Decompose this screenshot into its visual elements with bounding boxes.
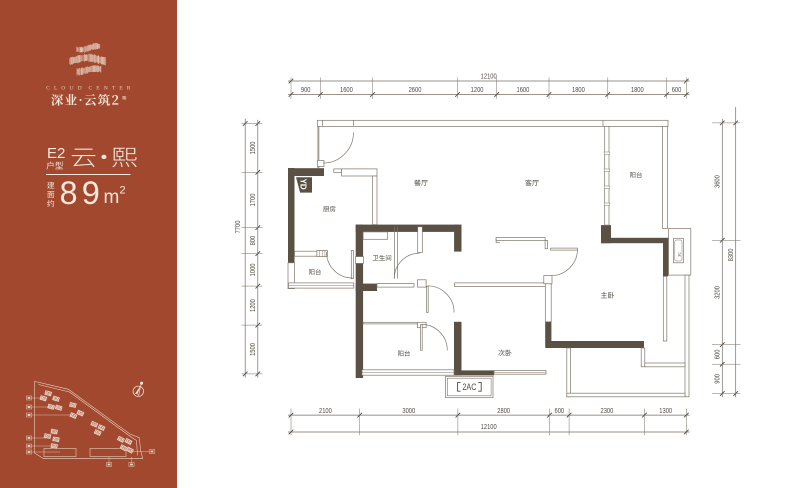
svg-text:900: 900	[301, 86, 311, 94]
svg-text:8300: 8300	[727, 248, 735, 261]
svg-text:900: 900	[714, 374, 722, 384]
svg-text:12100: 12100	[481, 423, 497, 431]
svg-text:1200: 1200	[471, 86, 484, 94]
svg-text:1700: 1700	[250, 193, 258, 206]
svg-text:1300: 1300	[659, 407, 672, 415]
svg-text:1500: 1500	[250, 141, 258, 154]
svg-text:3200: 3200	[714, 286, 722, 299]
svg-text:C L O U D C E N T E R: C L O U D C E N T E R	[46, 86, 132, 92]
svg-text:89: 89	[60, 175, 105, 211]
svg-text:2600: 2600	[409, 86, 422, 94]
svg-text:1600: 1600	[340, 86, 353, 94]
svg-text:2300: 2300	[600, 407, 613, 415]
svg-text:1800: 1800	[631, 86, 644, 94]
svg-text:1200: 1200	[250, 299, 258, 312]
svg-text:2AC: 2AC	[462, 382, 476, 392]
svg-text:600: 600	[714, 349, 722, 359]
svg-text:600: 600	[554, 407, 564, 415]
svg-text:2100: 2100	[319, 407, 332, 415]
svg-text:2: 2	[120, 185, 126, 197]
svg-text:1800: 1800	[572, 86, 585, 94]
svg-text:m: m	[104, 187, 120, 208]
svg-text:1500: 1500	[250, 343, 258, 356]
svg-text:3000: 3000	[402, 407, 415, 415]
svg-text:800: 800	[250, 236, 258, 246]
svg-text:1600: 1600	[516, 86, 529, 94]
svg-text:2800: 2800	[497, 407, 510, 415]
svg-text:7700: 7700	[235, 220, 243, 233]
svg-text:3C: 3C	[678, 252, 682, 257]
svg-text:YD: YD	[299, 179, 308, 190]
svg-text:600: 600	[672, 86, 682, 94]
svg-text:3600: 3600	[714, 175, 722, 188]
svg-text:12100: 12100	[481, 73, 497, 81]
svg-text:1000: 1000	[250, 263, 258, 276]
svg-text:E2: E2	[47, 145, 65, 162]
